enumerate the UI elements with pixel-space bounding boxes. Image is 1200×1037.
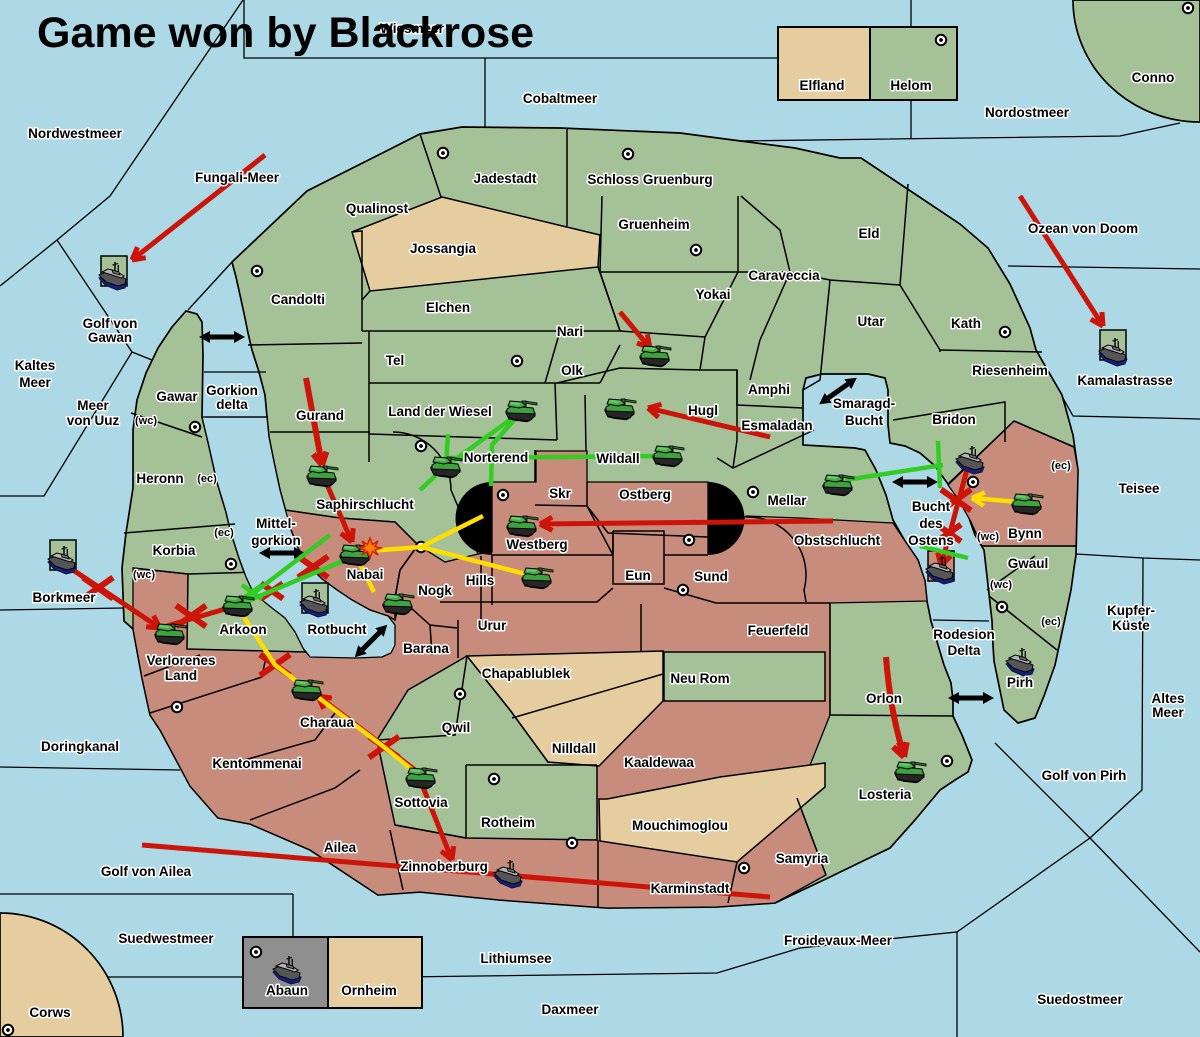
svg-text:Meer: Meer bbox=[1152, 705, 1184, 720]
svg-text:Karminstadt: Karminstadt bbox=[651, 881, 730, 896]
svg-text:des: des bbox=[919, 516, 942, 531]
svg-text:Meer: Meer bbox=[19, 375, 51, 390]
svg-text:Fungali-Meer: Fungali-Meer bbox=[195, 170, 280, 185]
svg-text:Kamalastrasse: Kamalastrasse bbox=[1077, 373, 1173, 388]
svg-text:Nilldall: Nilldall bbox=[552, 741, 596, 756]
svg-text:Nari: Nari bbox=[557, 324, 583, 339]
svg-text:(wc): (wc) bbox=[135, 415, 157, 427]
svg-text:Borkmeer: Borkmeer bbox=[32, 590, 96, 605]
svg-text:Westberg: Westberg bbox=[506, 537, 567, 552]
svg-text:Qwil: Qwil bbox=[442, 720, 471, 735]
svg-text:Mittel-: Mittel- bbox=[256, 516, 296, 531]
svg-text:Candolti: Candolti bbox=[271, 292, 325, 307]
svg-text:Kaltes: Kaltes bbox=[15, 358, 56, 373]
svg-text:Golf von Pirh: Golf von Pirh bbox=[1042, 768, 1127, 783]
svg-text:Kath: Kath bbox=[951, 316, 981, 331]
svg-text:Teisee: Teisee bbox=[1118, 481, 1160, 496]
svg-text:Tel: Tel bbox=[386, 353, 405, 368]
svg-text:Nogk: Nogk bbox=[418, 583, 452, 598]
svg-text:Altes: Altes bbox=[1151, 691, 1184, 706]
svg-text:Nordwestmeer: Nordwestmeer bbox=[28, 126, 123, 141]
svg-text:Sund: Sund bbox=[694, 569, 728, 584]
svg-text:Sottovia: Sottovia bbox=[394, 795, 448, 810]
svg-text:Riesenheim: Riesenheim bbox=[972, 363, 1048, 378]
svg-text:(wc): (wc) bbox=[977, 531, 999, 543]
svg-text:Elfland: Elfland bbox=[799, 78, 844, 93]
svg-text:Eun: Eun bbox=[625, 568, 651, 583]
svg-text:Wildall: Wildall bbox=[596, 451, 639, 466]
svg-text:Ostberg: Ostberg bbox=[619, 487, 671, 502]
svg-text:Ornheim: Ornheim bbox=[341, 983, 397, 998]
svg-text:Jadestadt: Jadestadt bbox=[473, 171, 537, 186]
svg-text:Helom: Helom bbox=[890, 78, 931, 93]
svg-text:Kupfer-: Kupfer- bbox=[1107, 603, 1155, 618]
svg-text:Chapablublek: Chapablublek bbox=[482, 666, 571, 681]
svg-text:Gorkion: Gorkion bbox=[206, 383, 258, 398]
svg-text:Cobaltmeer: Cobaltmeer bbox=[523, 91, 598, 106]
svg-text:Arkoon: Arkoon bbox=[219, 622, 266, 637]
svg-text:Kaaldewaa: Kaaldewaa bbox=[624, 755, 694, 770]
svg-text:Gruenheim: Gruenheim bbox=[618, 217, 689, 232]
svg-text:Hugl: Hugl bbox=[688, 403, 718, 418]
svg-text:Bridon: Bridon bbox=[932, 412, 976, 427]
svg-text:(ec): (ec) bbox=[197, 473, 217, 485]
svg-text:Smaragd-: Smaragd- bbox=[833, 396, 895, 411]
svg-text:Nabai: Nabai bbox=[347, 567, 384, 582]
svg-text:Golf von Ailea: Golf von Ailea bbox=[101, 864, 192, 879]
svg-text:Yokai: Yokai bbox=[695, 287, 730, 302]
svg-text:Ostens: Ostens bbox=[908, 533, 954, 548]
svg-text:Bucht: Bucht bbox=[845, 413, 884, 428]
svg-text:Verlorenes: Verlorenes bbox=[146, 653, 215, 668]
svg-text:Korbia: Korbia bbox=[153, 543, 196, 558]
svg-text:Saphirschlucht: Saphirschlucht bbox=[316, 497, 414, 512]
svg-text:Bynn: Bynn bbox=[1008, 526, 1042, 541]
svg-text:Küste: Küste bbox=[1112, 618, 1150, 633]
svg-text:Land: Land bbox=[165, 668, 197, 683]
svg-text:Delta: Delta bbox=[947, 643, 981, 658]
svg-text:Gurand: Gurand bbox=[296, 408, 344, 423]
svg-text:Gawan: Gawan bbox=[88, 330, 132, 345]
svg-text:Jossangia: Jossangia bbox=[410, 241, 477, 256]
svg-text:(wc): (wc) bbox=[990, 579, 1012, 591]
svg-text:Lithiumsee: Lithiumsee bbox=[480, 951, 552, 966]
svg-text:Schloss Gruenburg: Schloss Gruenburg bbox=[587, 172, 712, 187]
svg-text:Neu Rom: Neu Rom bbox=[670, 671, 729, 686]
svg-text:Feuerfeld: Feuerfeld bbox=[748, 623, 809, 638]
svg-text:(ec): (ec) bbox=[1051, 460, 1071, 472]
svg-text:Daxmeer: Daxmeer bbox=[541, 1002, 599, 1017]
svg-text:Golf von: Golf von bbox=[83, 316, 138, 331]
svg-text:Norterend: Norterend bbox=[464, 450, 529, 465]
svg-text:Rotheim: Rotheim bbox=[481, 815, 535, 830]
svg-text:Utar: Utar bbox=[857, 314, 885, 329]
svg-text:Land der Wiesel: Land der Wiesel bbox=[388, 404, 491, 419]
svg-text:Zinnoberburg: Zinnoberburg bbox=[400, 859, 488, 874]
svg-text:Qualinost: Qualinost bbox=[346, 201, 409, 216]
svg-text:Heronn: Heronn bbox=[136, 471, 183, 486]
svg-text:Game won by Blackrose: Game won by Blackrose bbox=[37, 9, 534, 57]
svg-text:Skr: Skr bbox=[549, 486, 572, 501]
svg-text:delta: delta bbox=[216, 397, 248, 412]
svg-text:Esmaladan: Esmaladan bbox=[741, 418, 812, 433]
svg-text:Rodesion: Rodesion bbox=[933, 627, 995, 642]
svg-text:Gwaul: Gwaul bbox=[1008, 556, 1049, 571]
svg-text:(wc): (wc) bbox=[133, 569, 155, 581]
svg-text:Caraveccia: Caraveccia bbox=[748, 268, 820, 283]
svg-text:Orlon: Orlon bbox=[866, 691, 902, 706]
svg-text:Meer: Meer bbox=[77, 398, 109, 413]
svg-text:Ailea: Ailea bbox=[324, 840, 357, 855]
svg-text:Ozean von Doom: Ozean von Doom bbox=[1028, 221, 1138, 236]
svg-text:Conno: Conno bbox=[1132, 70, 1175, 85]
svg-text:Olk: Olk bbox=[561, 363, 583, 378]
svg-text:Froidevaux-Meer: Froidevaux-Meer bbox=[784, 933, 893, 948]
svg-text:Corws: Corws bbox=[29, 1005, 70, 1020]
svg-text:Bucht: Bucht bbox=[912, 499, 951, 514]
svg-text:gorkion: gorkion bbox=[251, 533, 301, 548]
svg-text:Mouchimoglou: Mouchimoglou bbox=[632, 818, 728, 833]
svg-text:Elchen: Elchen bbox=[426, 300, 470, 315]
svg-text:Gawar: Gawar bbox=[156, 389, 198, 404]
svg-text:Losteria: Losteria bbox=[859, 787, 912, 802]
svg-text:Suedostmeer: Suedostmeer bbox=[1037, 992, 1123, 1007]
svg-text:Obstschlucht: Obstschlucht bbox=[794, 533, 881, 548]
svg-text:(ec): (ec) bbox=[214, 527, 234, 539]
svg-text:(ec): (ec) bbox=[1041, 616, 1061, 628]
svg-text:Abaun: Abaun bbox=[266, 983, 308, 998]
svg-text:Mellar: Mellar bbox=[767, 493, 807, 508]
svg-text:Barana: Barana bbox=[403, 641, 449, 656]
svg-text:Charaua: Charaua bbox=[300, 715, 355, 730]
svg-text:Samyria: Samyria bbox=[776, 851, 829, 866]
svg-text:Hills: Hills bbox=[466, 573, 495, 588]
svg-text:Doringkanal: Doringkanal bbox=[41, 739, 119, 754]
svg-text:Amphi: Amphi bbox=[748, 382, 790, 397]
svg-text:Rotbucht: Rotbucht bbox=[307, 622, 367, 637]
svg-text:Pirh: Pirh bbox=[1007, 675, 1033, 690]
svg-text:Urur: Urur bbox=[478, 618, 507, 633]
svg-text:Suedwestmeer: Suedwestmeer bbox=[118, 931, 214, 946]
svg-text:von Uuz: von Uuz bbox=[67, 413, 120, 428]
svg-text:Eld: Eld bbox=[858, 226, 879, 241]
svg-text:Kentommenai: Kentommenai bbox=[212, 756, 301, 771]
svg-text:Nordostmeer: Nordostmeer bbox=[985, 105, 1070, 120]
